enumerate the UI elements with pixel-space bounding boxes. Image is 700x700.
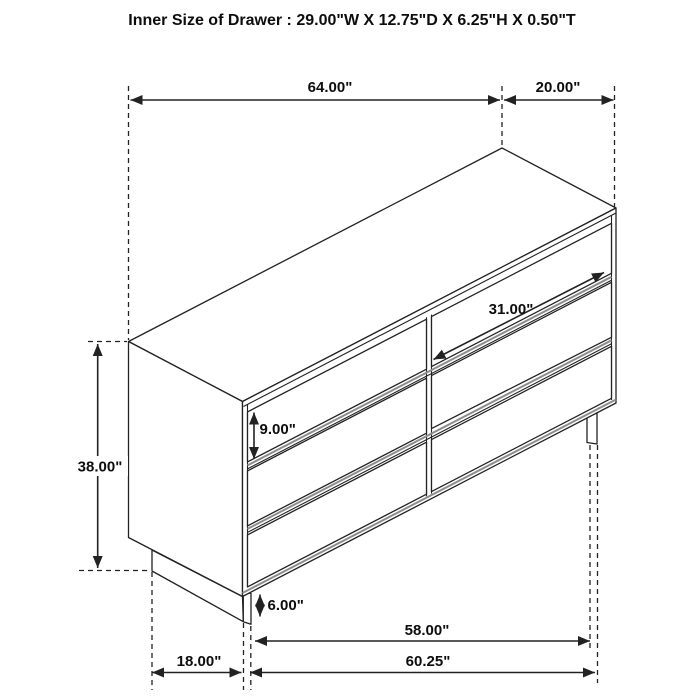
dim-label-floor-depth: 18.00" — [177, 653, 222, 670]
dim-top-width: 64.00" — [131, 79, 501, 100]
dim-base-width: 58.00" — [255, 622, 590, 641]
dim-label-drawer-height: 9.00" — [260, 421, 296, 438]
dimension-diagram-page: Inner Size of Drawer : 29.00"W X 12.75"D… — [0, 0, 700, 700]
dim-label-drawer-width: 31.00" — [489, 301, 534, 318]
dim-top-depth: 20.00" — [504, 79, 614, 100]
dim-overall-height: 38.00" — [72, 344, 128, 568]
dim-label-top-depth: 20.00" — [536, 79, 581, 96]
dim-label-floor-width: 60.25" — [406, 653, 451, 670]
dim-label-overall-height: 38.00" — [78, 459, 123, 476]
dresser-body — [129, 148, 617, 597]
dim-base-height: 6.00" — [260, 595, 304, 617]
dim-label-base-height: 6.00" — [268, 597, 304, 614]
dim-floor-width: 60.25" — [250, 653, 595, 673]
dim-floor-depth: 18.00" — [152, 653, 242, 673]
dim-label-base-width: 58.00" — [405, 622, 450, 639]
dim-label-top-width: 64.00" — [308, 79, 353, 96]
diagram-title: Inner Size of Drawer : 29.00"W X 12.75"D… — [128, 12, 576, 29]
plinth-front-corner-leg — [243, 592, 251, 625]
dresser-dimension-diagram: Inner Size of Drawer : 29.00"W X 12.75"D… — [0, 0, 700, 700]
